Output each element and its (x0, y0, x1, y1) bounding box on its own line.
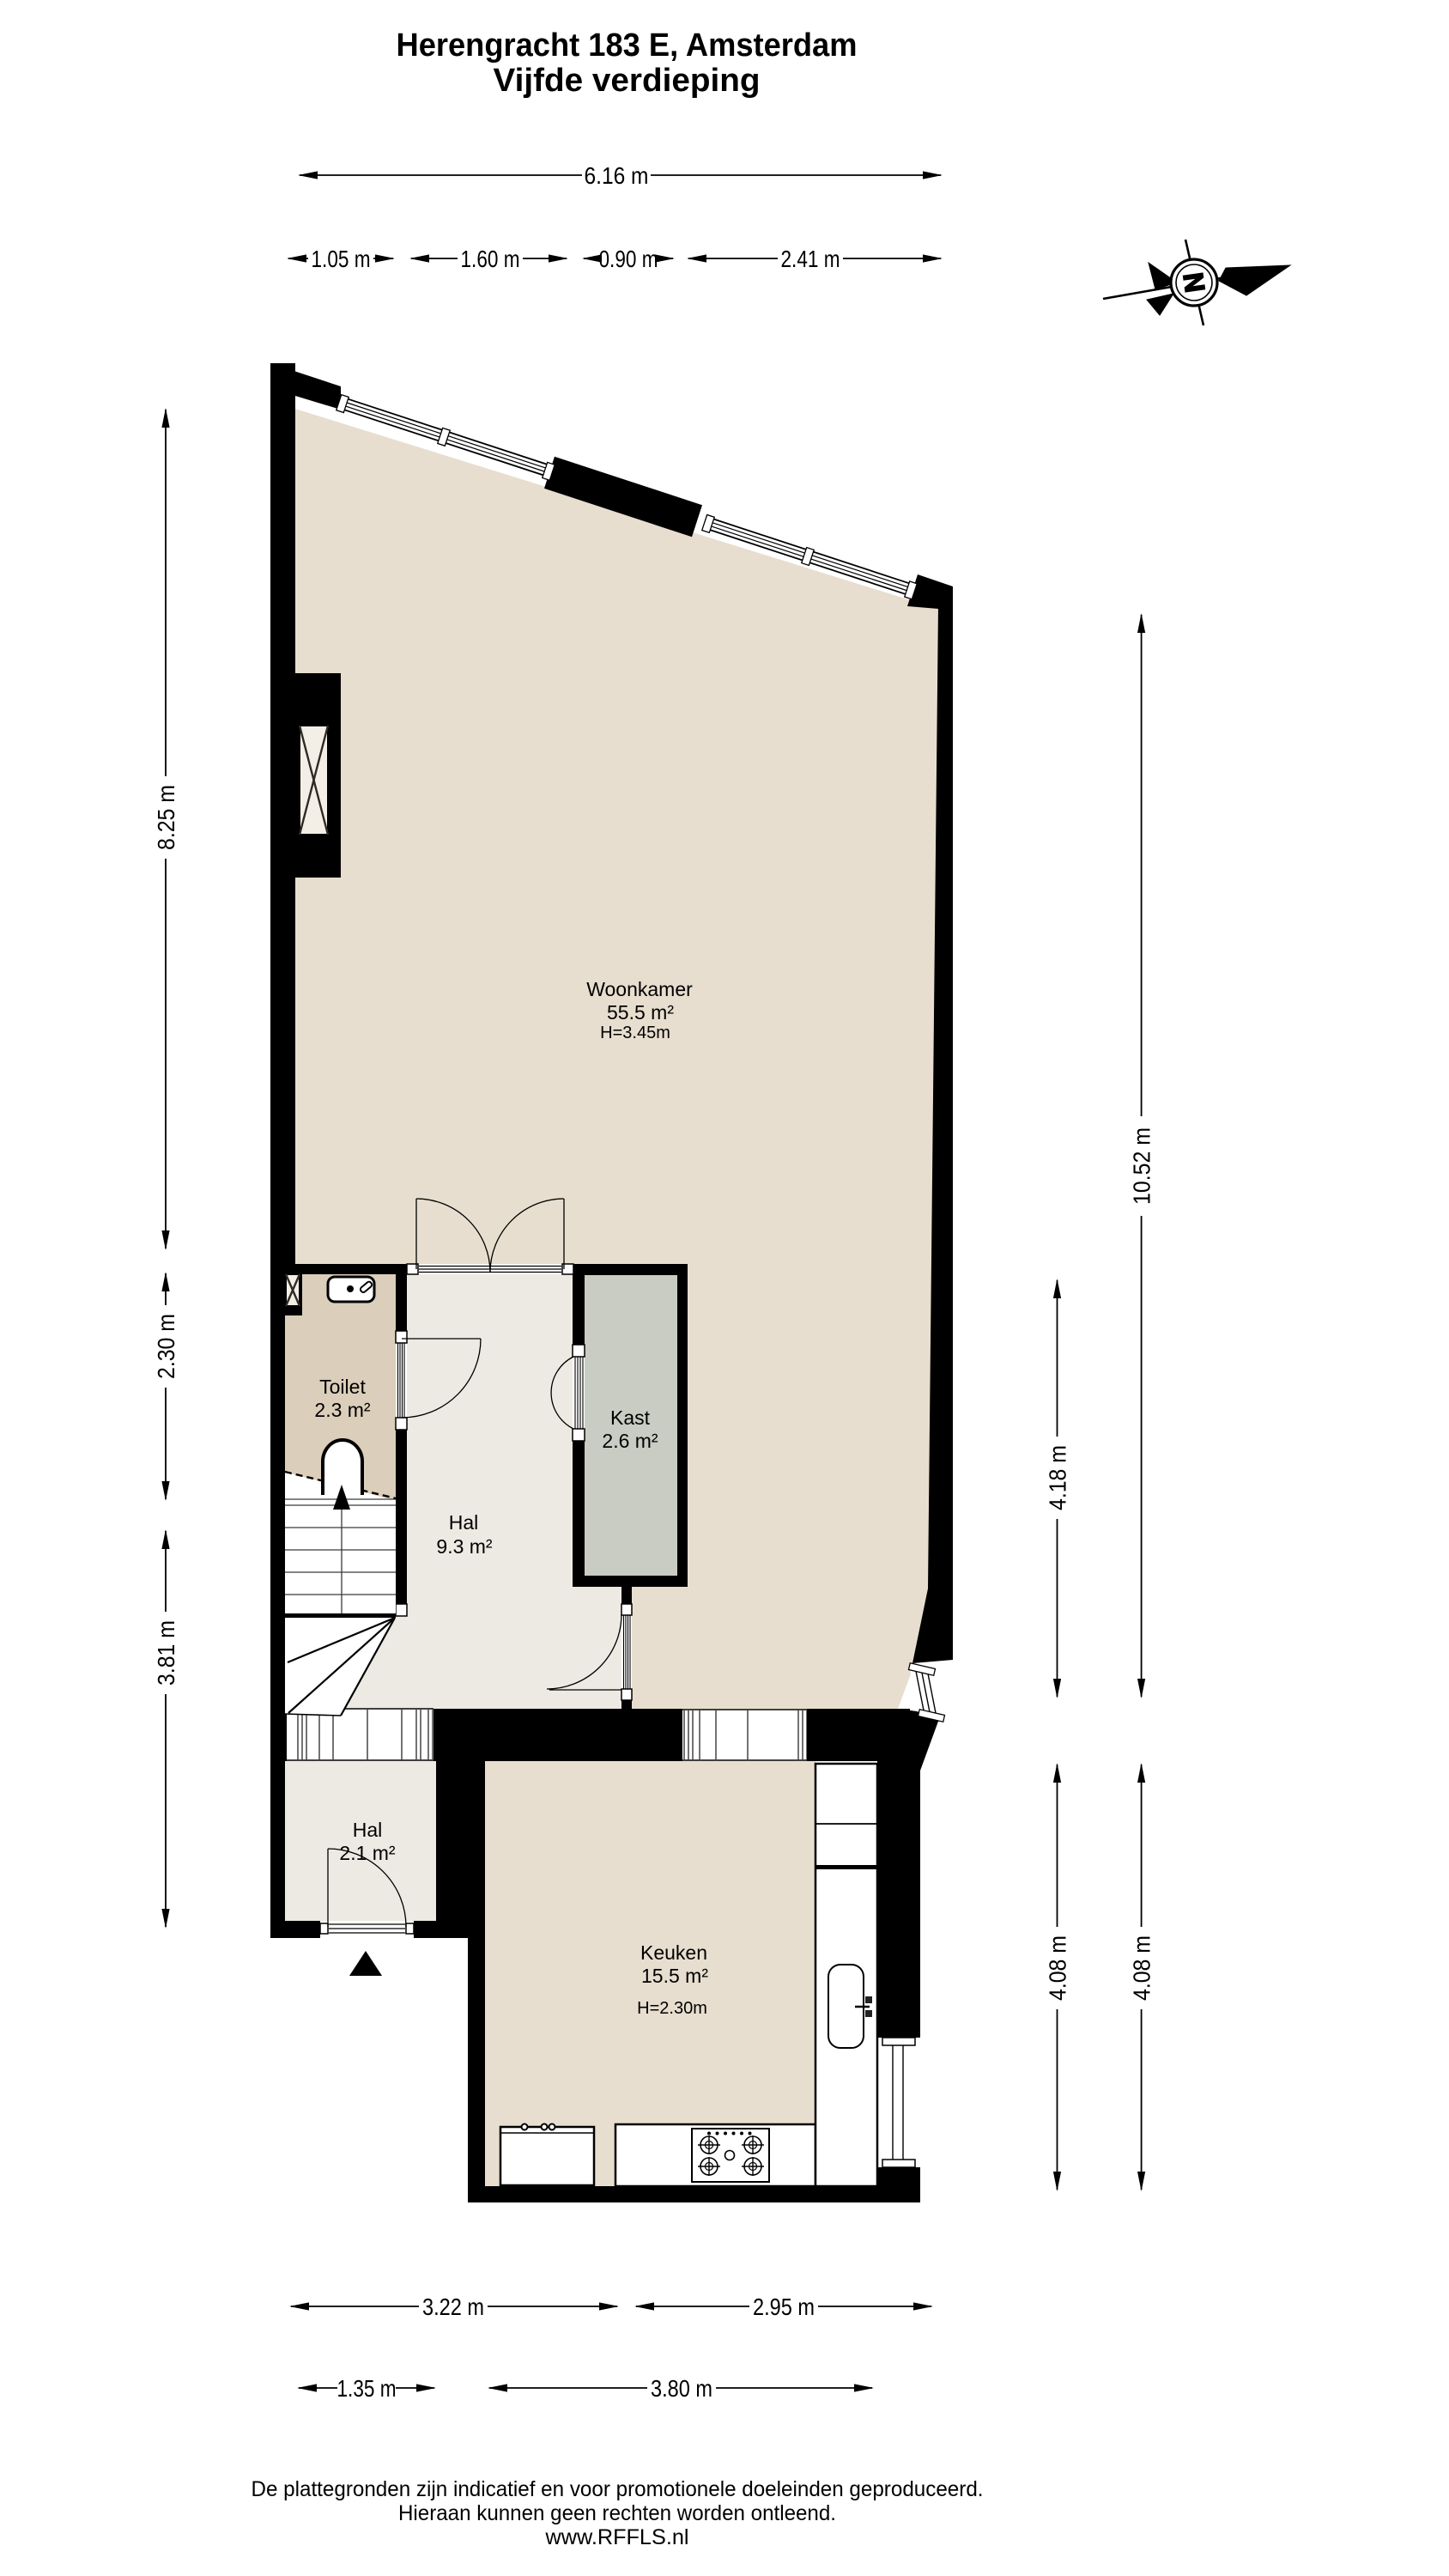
svg-text:Vijfde verdieping: Vijfde verdieping (494, 63, 761, 99)
svg-text:8.25 m: 8.25 m (153, 785, 179, 850)
svg-text:Woonkamer: Woonkamer (586, 978, 693, 1000)
svg-text:Keuken: Keuken (640, 1941, 707, 1964)
svg-text:6.16 m: 6.16 m (585, 162, 649, 189)
svg-text:3.22 m: 3.22 m (422, 2293, 484, 2320)
svg-text:2.41 m: 2.41 m (781, 246, 840, 272)
svg-text:H=2.30m: H=2.30m (637, 1999, 707, 2018)
svg-text:10.52 m: 10.52 m (1129, 1127, 1155, 1205)
svg-text:9.3 m²: 9.3 m² (436, 1535, 493, 1558)
svg-text:Herengracht 183 E, Amsterdam: Herengracht 183 E, Amsterdam (397, 27, 858, 64)
svg-text:1.05 m: 1.05 m (312, 246, 371, 272)
svg-text:H=3.45m: H=3.45m (600, 1024, 670, 1042)
svg-text:Hieraan kunnen geen rechten wo: Hieraan kunnen geen rechten worden ontle… (398, 2501, 836, 2525)
svg-text:0.90 m: 0.90 m (599, 246, 658, 272)
svg-text:De plattegronden zijn indicati: De plattegronden zijn indicatief en voor… (252, 2477, 984, 2501)
svg-text:Hal: Hal (449, 1511, 479, 1534)
svg-text:4.08 m: 4.08 m (1129, 1935, 1155, 2001)
svg-text:1.35 m: 1.35 m (337, 2375, 397, 2402)
svg-text:2.3 m²: 2.3 m² (314, 1399, 371, 1421)
svg-text:Hal: Hal (353, 1819, 383, 1841)
svg-text:4.18 m: 4.18 m (1045, 1445, 1071, 1510)
svg-text:Toilet: Toilet (319, 1376, 366, 1398)
svg-text:1.60 m: 1.60 m (461, 246, 520, 272)
svg-text:3.81 m: 3.81 m (153, 1620, 179, 1686)
svg-text:www.RFFLS.nl: www.RFFLS.nl (544, 2525, 688, 2549)
svg-text:2.1 m²: 2.1 m² (339, 1842, 396, 1864)
svg-text:55.5 m²: 55.5 m² (607, 1001, 674, 1024)
svg-text:Kast: Kast (610, 1406, 651, 1429)
svg-text:15.5 m²: 15.5 m² (641, 1965, 708, 1987)
svg-text:2.95 m: 2.95 m (753, 2293, 815, 2320)
svg-text:3.80 m: 3.80 m (651, 2375, 712, 2402)
svg-text:4.08 m: 4.08 m (1045, 1935, 1071, 2001)
svg-text:2.30 m: 2.30 m (153, 1314, 179, 1379)
svg-text:2.6 m²: 2.6 m² (602, 1430, 658, 1452)
